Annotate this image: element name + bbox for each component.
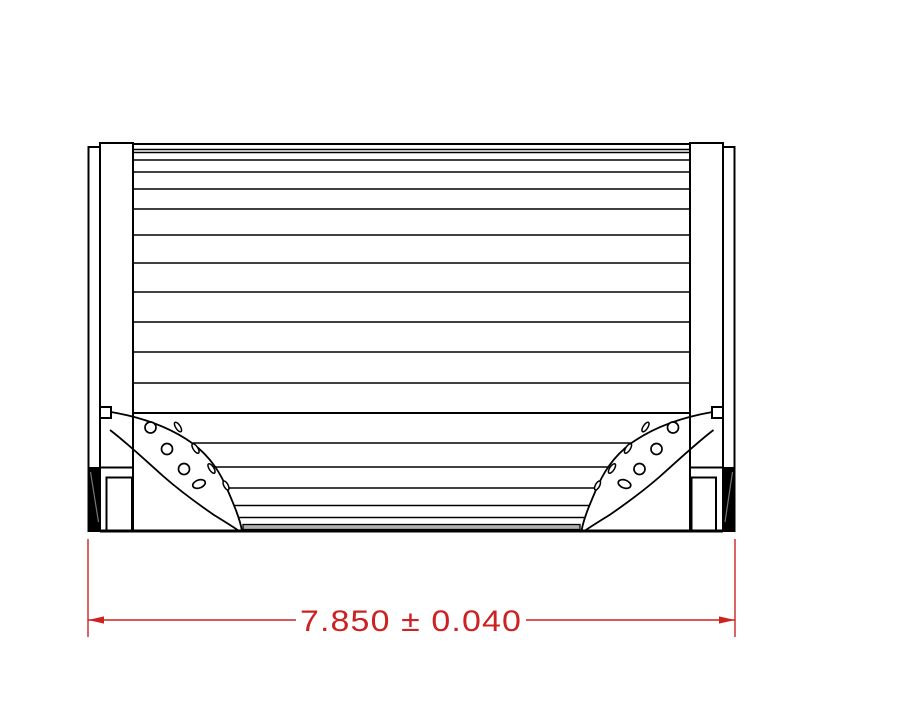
baffle-hole bbox=[651, 444, 662, 455]
right-flange-tab bbox=[712, 407, 723, 418]
filter-drawing-svg: 7.850 ± 0.040 bbox=[0, 0, 912, 720]
baffle-hole bbox=[179, 464, 190, 475]
baffle-slot-hole bbox=[593, 480, 601, 491]
baffle-slot-hole bbox=[222, 480, 230, 491]
left-core-inset bbox=[107, 478, 133, 531]
drawing-canvas: 7.850 ± 0.040 bbox=[0, 0, 912, 720]
baffle-slot-hole bbox=[607, 463, 617, 475]
right-core-inset bbox=[692, 478, 717, 531]
baffle-slot-hole bbox=[207, 463, 217, 475]
dimension-arrow-right bbox=[719, 616, 735, 623]
baffle-hole bbox=[617, 478, 632, 490]
baffle-hole bbox=[145, 422, 156, 433]
pleat-media-section bbox=[133, 144, 690, 383]
dimension-arrow-left bbox=[88, 616, 104, 623]
right-end-cap-inner bbox=[690, 143, 723, 531]
dimension-callout: 7.850 ± 0.040 bbox=[88, 539, 735, 638]
right-end-cap bbox=[690, 143, 735, 531]
dimension-text: 7.850 ± 0.040 bbox=[300, 605, 522, 638]
left-end-cap bbox=[89, 143, 134, 531]
baffle-hole bbox=[162, 444, 173, 455]
baffle-slot-hole bbox=[641, 421, 651, 433]
baffle-slot-hole bbox=[173, 421, 183, 433]
baffle-slot-hole bbox=[191, 443, 201, 455]
left-flange-tab bbox=[100, 407, 111, 418]
left-end-cap-inner bbox=[100, 143, 133, 531]
baffle-hole bbox=[668, 422, 679, 433]
baffle-hole bbox=[192, 478, 207, 490]
baffle-slot-hole bbox=[623, 443, 633, 455]
baffle-hole bbox=[634, 464, 645, 475]
bottom-edge-band bbox=[243, 525, 580, 530]
bottom-pleat-section bbox=[193, 443, 631, 530]
